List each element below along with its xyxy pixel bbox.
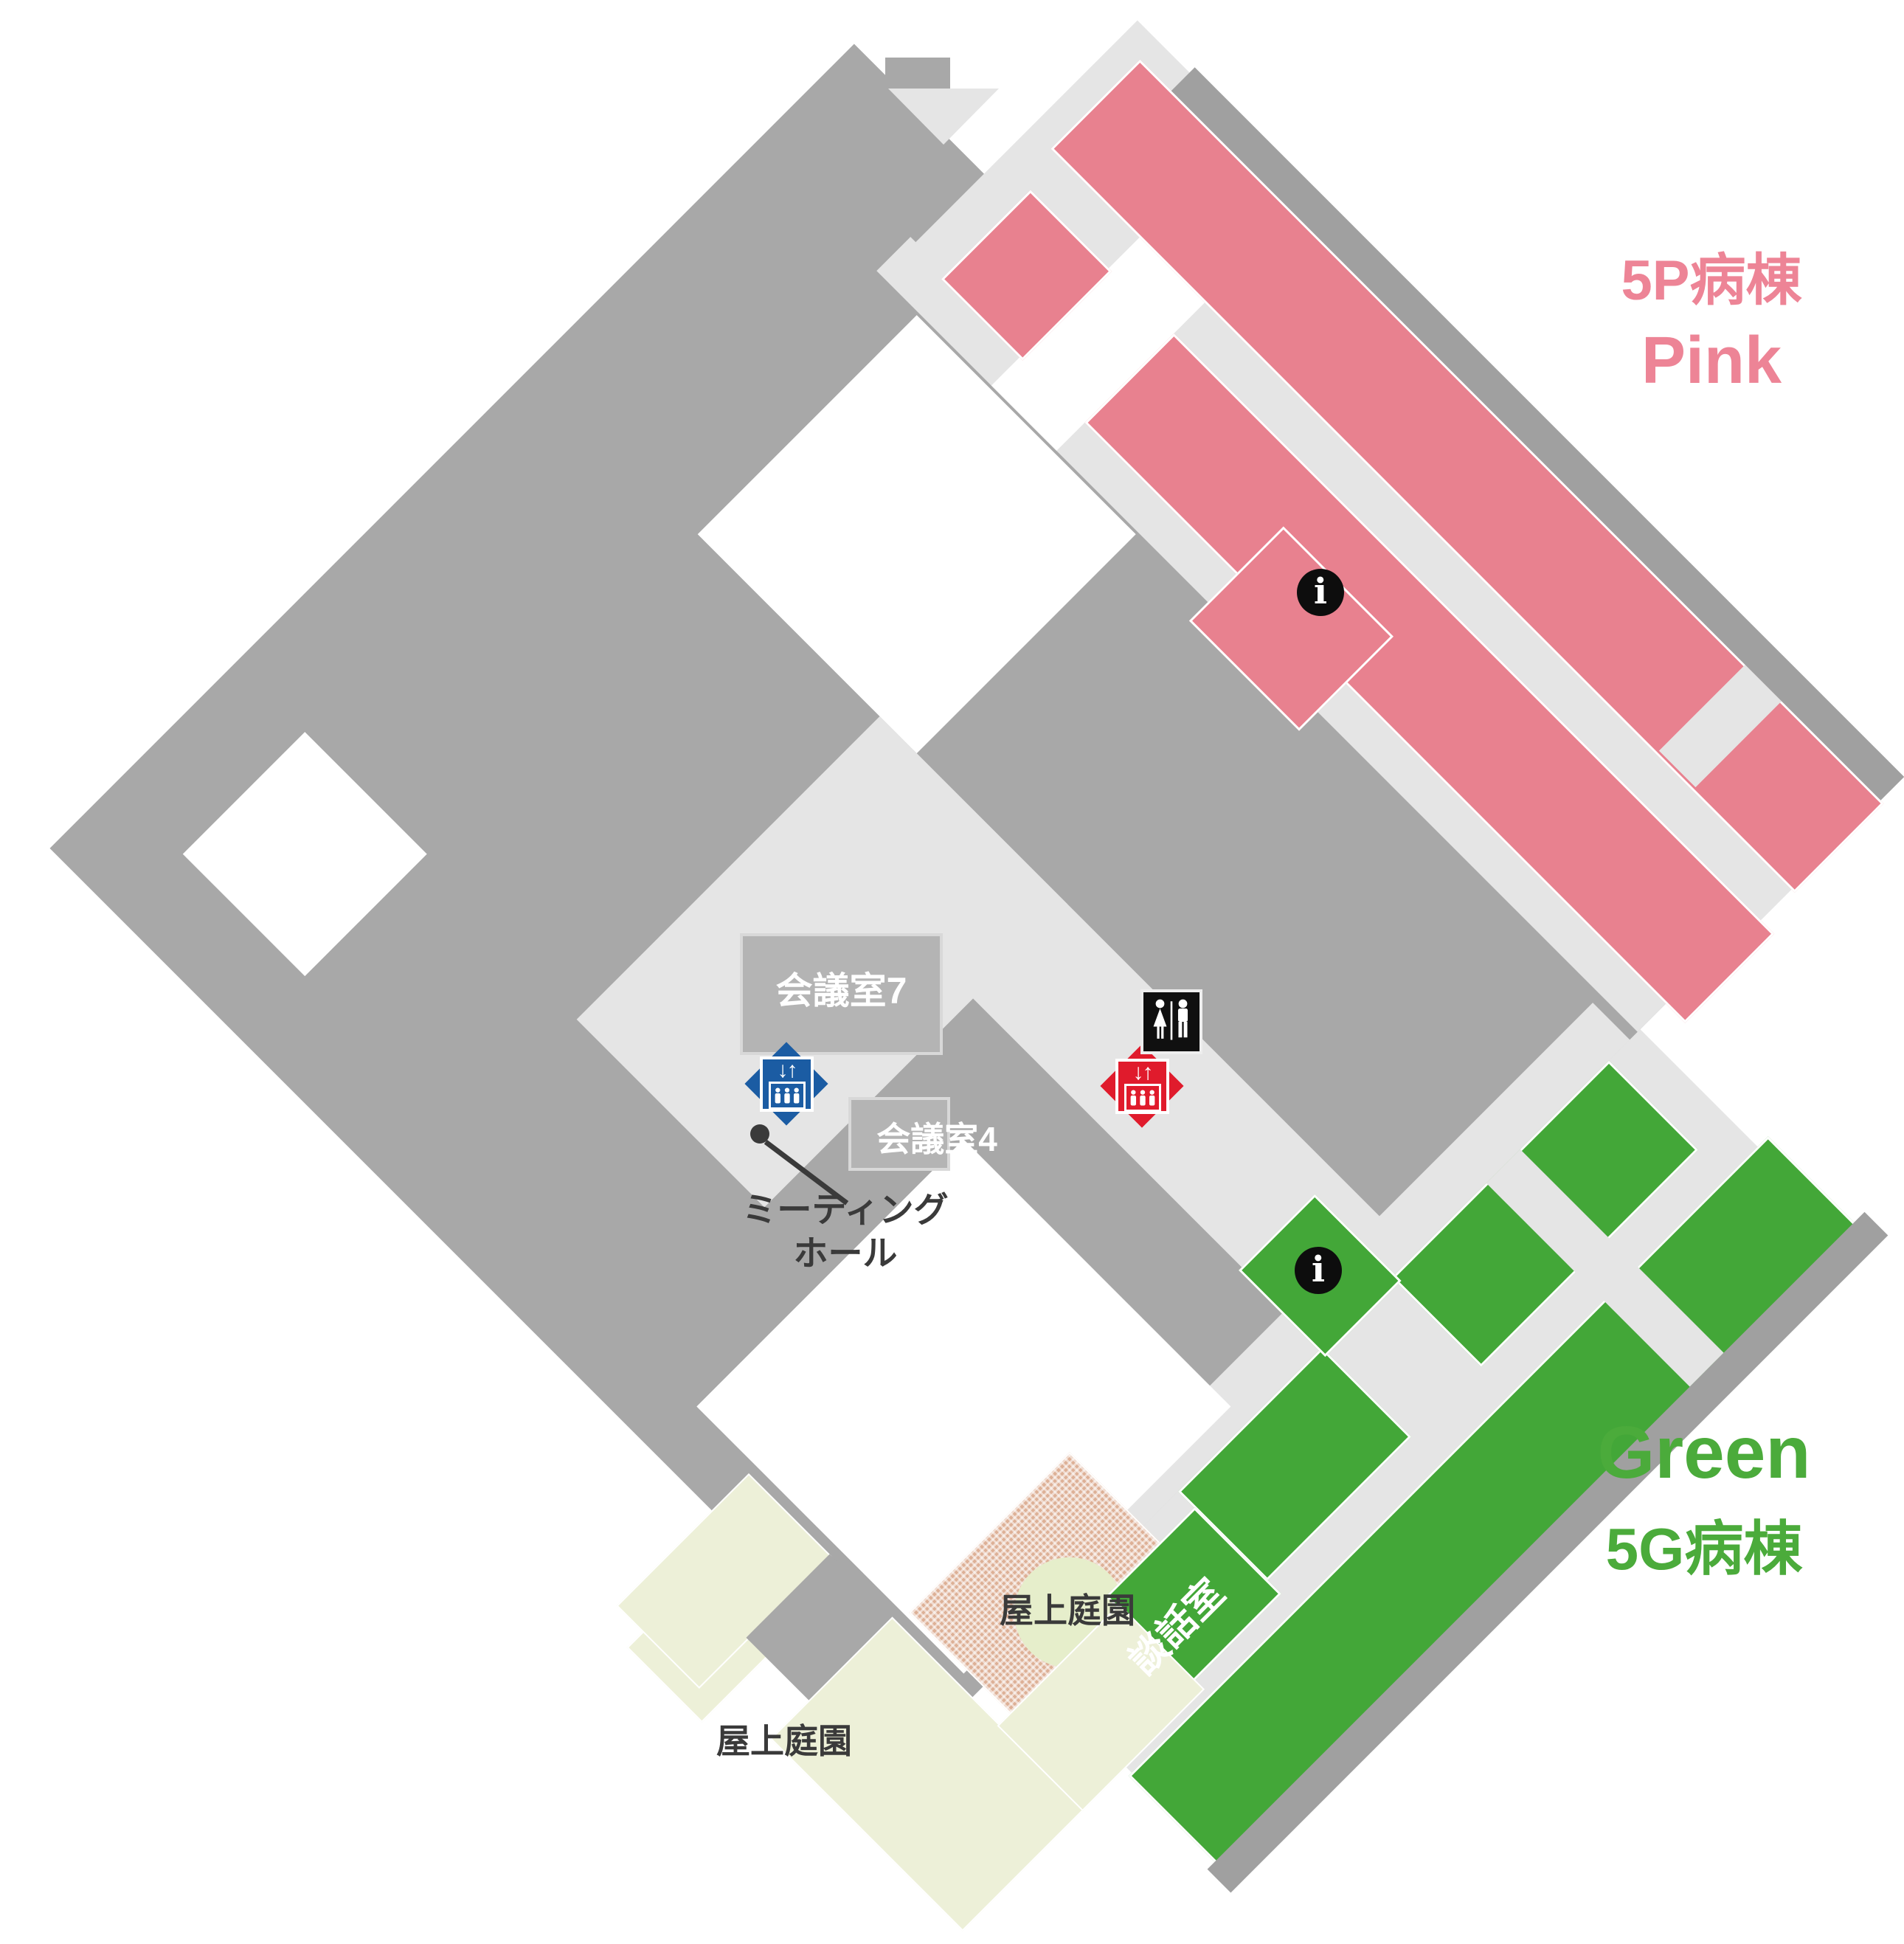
- info-icon-pink-ward: i: [1297, 569, 1344, 616]
- conference-room-7-label: 会議室7: [740, 961, 943, 1014]
- toilet-icon: [1143, 992, 1199, 1051]
- conference-room-4-label: 会議室4: [852, 1113, 1022, 1161]
- top-cap-block: [885, 58, 950, 90]
- red-elevator-car: [1124, 1084, 1161, 1112]
- toilet-pictogram: [1149, 997, 1194, 1046]
- green-ward-title: Green 5G病棟: [1520, 1411, 1889, 1587]
- blue-elevator-icon: ↓↑: [760, 1056, 814, 1112]
- red-elevator-arrows: ↓↑: [1118, 1062, 1166, 1084]
- green-ward-en: Green: [1520, 1411, 1889, 1495]
- rooftop-garden-lower-label: 屋上庭園: [674, 1720, 895, 1763]
- elevator-people-icon: [1129, 1089, 1157, 1107]
- elevator-people-icon: [773, 1087, 801, 1104]
- floor-map: 会議室7 会議室4 ミーティング ホール 屋上庭園 屋上庭園 談話室 ↓↑ ↓↑: [0, 0, 1904, 1944]
- green-ward-kanji: 5G病棟: [1520, 1501, 1889, 1587]
- pink-ward-en: Pink: [1542, 323, 1881, 399]
- blue-elevator-arrows: ↓↑: [763, 1059, 811, 1082]
- pink-ward-kanji: 5P病棟: [1542, 235, 1881, 316]
- info-icon-green-ward: i: [1295, 1247, 1342, 1294]
- blue-elevator-car: [769, 1082, 806, 1110]
- pink-ward-title: 5P病棟 Pink: [1542, 235, 1881, 399]
- red-elevator-icon: ↓↑: [1115, 1059, 1169, 1114]
- meeting-hall-label: ミーティング ホール: [698, 1188, 993, 1275]
- meeting-hall-label-line2: ホール: [698, 1231, 993, 1275]
- meeting-hall-label-line1: ミーティング: [698, 1188, 993, 1231]
